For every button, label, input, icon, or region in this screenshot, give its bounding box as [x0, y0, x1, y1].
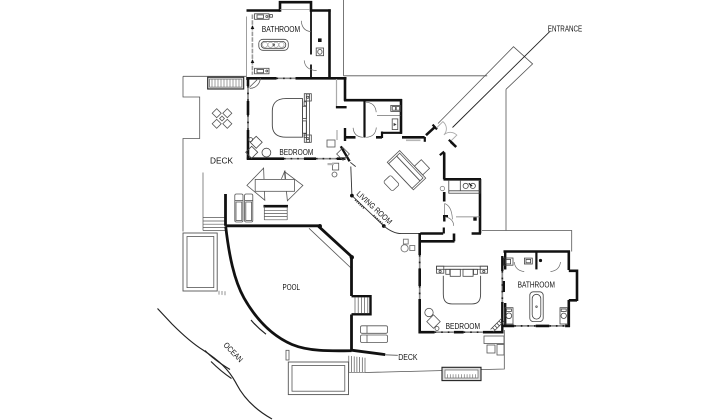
svg-text:BEDROOM: BEDROOM [446, 322, 481, 331]
svg-text:DECK: DECK [210, 156, 234, 165]
svg-text:BEDROOM: BEDROOM [279, 148, 313, 157]
svg-text:DECK: DECK [398, 353, 418, 362]
svg-text:ENTRANCE: ENTRANCE [548, 24, 582, 33]
svg-text:BATHROOM: BATHROOM [518, 281, 556, 290]
svg-text:POOL: POOL [283, 283, 301, 292]
svg-text:BATHROOM: BATHROOM [262, 25, 301, 34]
